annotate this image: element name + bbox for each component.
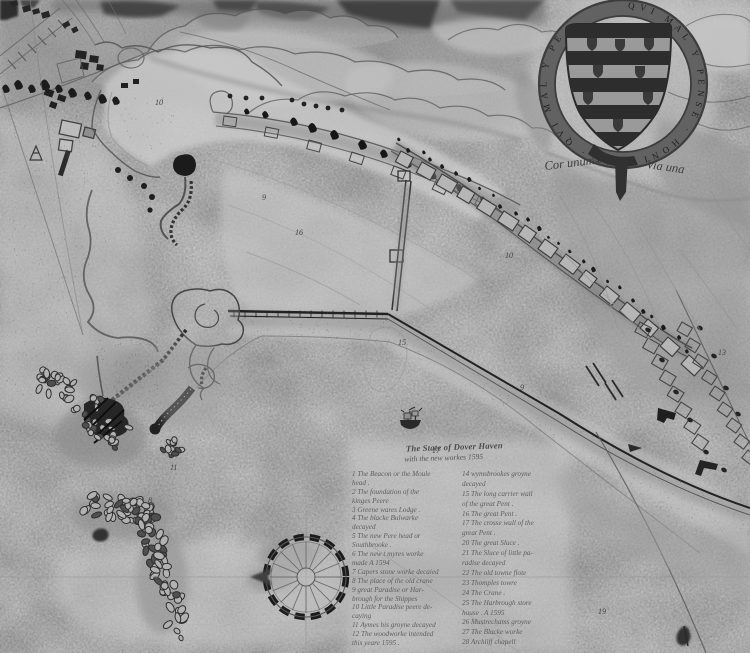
svg-text:caying: caying <box>352 612 372 620</box>
svg-text:16: 16 <box>295 228 303 237</box>
svg-text:15 The long carrier wall: 15 The long carrier wall <box>462 490 533 498</box>
svg-text:8: 8 <box>148 496 152 505</box>
svg-text:house . A 1595: house . A 1595 <box>462 609 505 617</box>
svg-text:decayed: decayed <box>352 523 376 531</box>
svg-text:4 The blacke Bulwarke: 4 The blacke Bulwarke <box>352 514 419 522</box>
svg-text:10: 10 <box>505 251 513 260</box>
svg-text:7 Capers stone worke decaied: 7 Capers stone worke decaied <box>352 568 439 576</box>
svg-text:5 The new Pere head or: 5 The new Pere head or <box>352 532 421 540</box>
svg-text:of the great Pent .: of the great Pent . <box>462 500 514 508</box>
svg-text:13: 13 <box>718 348 726 357</box>
svg-text:16 The great Pent .: 16 The great Pent . <box>462 510 517 518</box>
svg-text:24 The Crane .: 24 The Crane . <box>462 589 505 597</box>
svg-text:17 The crosse wall of the: 17 The crosse wall of the <box>462 519 535 527</box>
svg-text:25 The Harbrough store: 25 The Harbrough store <box>462 599 532 607</box>
svg-text:23 Thomples towre: 23 Thomples towre <box>462 579 518 587</box>
svg-text:radise decayed: radise decayed <box>462 559 506 567</box>
svg-text:3 Greene wares Lodge .: 3 Greene wares Lodge . <box>351 506 421 514</box>
svg-text:19: 19 <box>598 607 606 616</box>
svg-text:12 The woodworke intended: 12 The woodworke intended <box>352 630 434 638</box>
svg-text:22 The old towne flote: 22 The old towne flote <box>462 569 527 577</box>
svg-text:9: 9 <box>262 193 266 202</box>
svg-text:10 Little Paradise peere de-: 10 Little Paradise peere de- <box>352 603 433 611</box>
svg-text:kinges Peere: kinges Peere <box>352 497 389 505</box>
svg-text:11 Aymes his groyne decayed: 11 Aymes his groyne decayed <box>352 621 436 629</box>
svg-text:17: 17 <box>432 446 441 455</box>
svg-text:28 Archliff chapell: 28 Archliff chapell <box>462 638 516 646</box>
svg-text:20 The great Sluce .: 20 The great Sluce . <box>462 539 520 547</box>
svg-text:head .: head . <box>352 479 370 487</box>
svg-text:8 The place of the old crane: 8 The place of the old crane <box>352 577 433 585</box>
svg-text:14 wymsbrookes groyne: 14 wymsbrookes groyne <box>462 470 532 478</box>
svg-text:this yeare 1595 .: this yeare 1595 . <box>352 639 400 647</box>
svg-text:decayed: decayed <box>462 480 486 488</box>
svg-text:1 The Beacon or the Moule: 1 The Beacon or the Moule <box>352 470 431 478</box>
svg-text:3: 3 <box>64 151 69 160</box>
svg-text:26 Mustrechams groyne: 26 Mustrechams groyne <box>462 618 532 626</box>
svg-text:6 The new t myres worke: 6 The new t myres worke <box>352 550 424 558</box>
svg-text:10: 10 <box>155 98 163 107</box>
svg-text:Southbrooke .: Southbrooke . <box>352 541 392 549</box>
svg-text:27 The Blacke worke: 27 The Blacke worke <box>462 628 523 636</box>
svg-text:made A 1594: made A 1594 <box>352 559 390 567</box>
svg-text:great Pent .: great Pent . <box>462 529 496 537</box>
svg-text:9: 9 <box>520 383 524 392</box>
svg-text:brough for the Shippes: brough for the Shippes <box>352 595 418 603</box>
svg-text:9 great Paradise or Har-: 9 great Paradise or Har- <box>352 586 424 594</box>
svg-text:11: 11 <box>170 463 177 472</box>
svg-text:15: 15 <box>398 338 406 347</box>
svg-text:21 The Sluce of little pa-: 21 The Sluce of little pa- <box>462 549 533 557</box>
svg-text:2 The foundation of the: 2 The foundation of the <box>352 488 420 496</box>
